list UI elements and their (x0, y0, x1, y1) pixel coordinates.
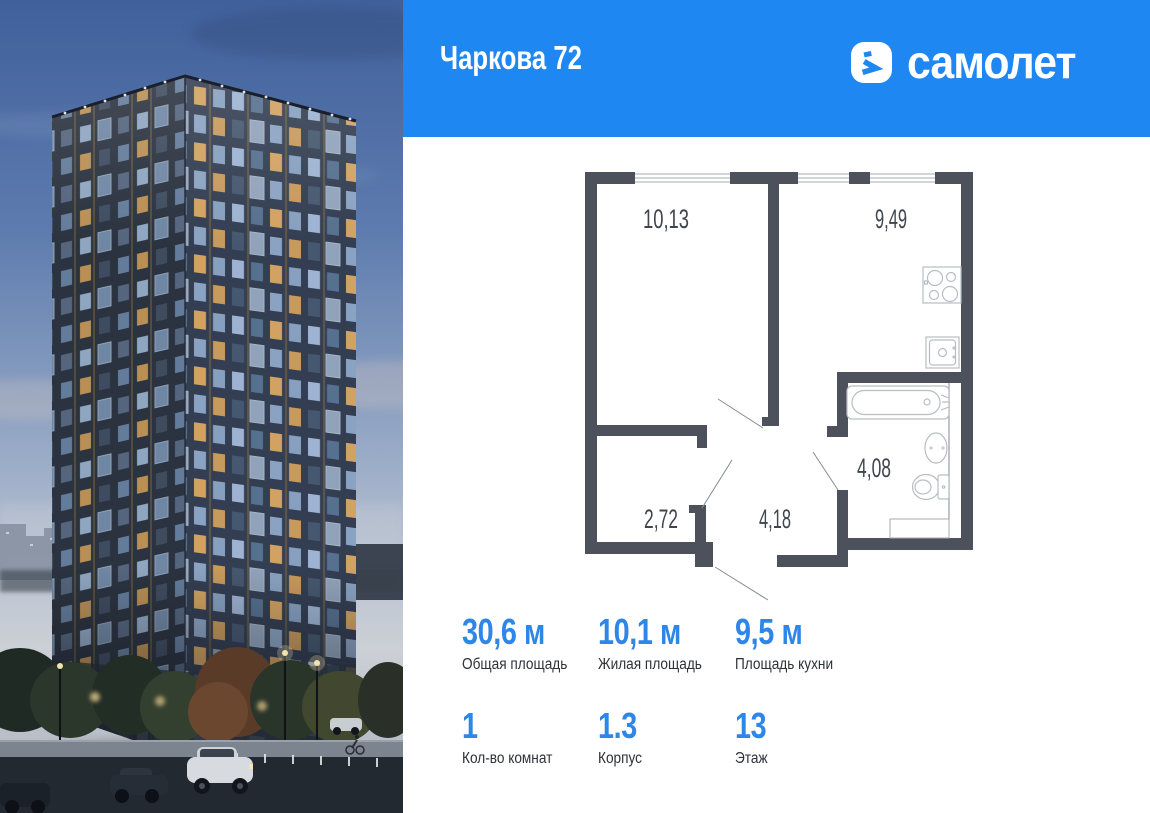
floor-plan: 10,13 9,49 2,72 4,18 4,08 (585, 172, 973, 602)
stat-value: 10,1 м (598, 616, 708, 648)
toilet-icon (913, 475, 950, 500)
kitchen-sink-icon (926, 337, 959, 368)
stat-rooms: 1 Кол-во комнат (462, 710, 598, 766)
samolet-logo-icon (851, 42, 892, 83)
stat-label: Корпус (598, 751, 719, 766)
stat-floor: 13 Этаж (735, 710, 885, 766)
brand-name: самолет (907, 39, 1076, 85)
room-label-bedroom: 10,13 (643, 204, 689, 234)
room-label-hallway: 4,18 (759, 504, 791, 534)
stat-value: 13 (735, 710, 855, 742)
stat-label: Общая площадь (462, 657, 582, 672)
stats-grid: 30,6 м Общая площадь 10,1 м Жилая площад… (462, 616, 885, 766)
washbasin-icon (925, 433, 947, 463)
room-label-bathroom: 4,08 (857, 453, 891, 483)
header: Чаркова 72 самолет (403, 0, 1150, 137)
stat-value: 30,6 м (462, 616, 571, 648)
stat-label: Площадь кухни (735, 657, 867, 672)
brand-logo[interactable]: самолет (851, 36, 1088, 88)
stat-kitchen-area: 9,5 м Площадь кухни (735, 616, 885, 672)
stove-icon (923, 267, 961, 303)
stat-value: 1.3 (598, 710, 708, 742)
room-label-kitchen: 9,49 (875, 204, 907, 234)
duct-shaft (890, 519, 949, 538)
stat-living-area: 10,1 м Жилая площадь (598, 616, 735, 672)
listing-card: Чаркова 72 самолет (0, 0, 1150, 813)
stat-label: Этаж (735, 751, 867, 766)
bathtub-icon (847, 386, 949, 419)
page-title: Чаркова 72 (440, 40, 582, 76)
stat-value: 9,5 м (735, 616, 855, 648)
content-panel: Чаркова 72 самолет (403, 0, 1150, 813)
building-photo (0, 0, 403, 813)
stat-value: 1 (462, 710, 571, 742)
room-label-wardrobe: 2,72 (644, 504, 678, 534)
stat-building: 1.3 Корпус (598, 710, 735, 766)
stat-total-area: 30,6 м Общая площадь (462, 616, 598, 672)
stat-label: Кол-во комнат (462, 751, 582, 766)
door-swings (702, 399, 838, 600)
stat-label: Жилая площадь (598, 657, 719, 672)
